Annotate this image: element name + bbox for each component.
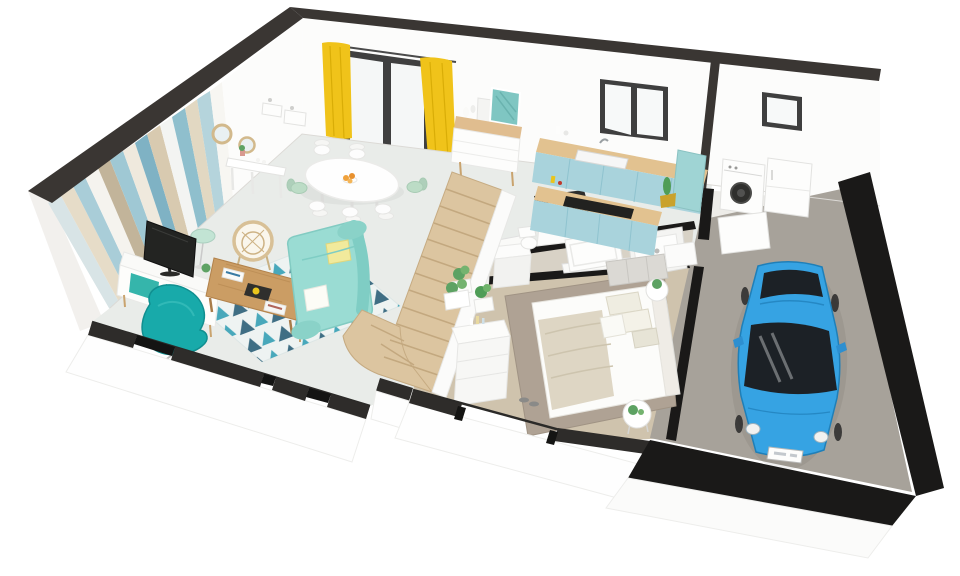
plant-icon [202, 264, 211, 273]
pillow [632, 328, 659, 348]
tall-appliance [764, 158, 812, 217]
headlight [814, 432, 828, 443]
cactus-icon [663, 177, 671, 195]
yellow-pillow [326, 240, 351, 264]
shower-drain [655, 249, 660, 254]
kitchen-window [600, 79, 668, 141]
floor-plan-canvas [0, 0, 960, 576]
wall-shelf [262, 103, 282, 117]
service-door-leaf [718, 212, 770, 254]
wall-shelf [284, 110, 306, 126]
tall-cabinet [672, 150, 706, 212]
white-pillow [304, 285, 329, 311]
washing-machine [720, 159, 765, 215]
double-bed [532, 284, 680, 418]
round-mirror-icon [213, 125, 231, 143]
car-windshield [744, 323, 837, 395]
toilet-bowl [521, 237, 537, 249]
floor-plan-3d-render [0, 0, 960, 576]
door-glass [391, 63, 424, 151]
door-glass [350, 57, 383, 146]
pillow [600, 314, 626, 338]
headlight [746, 424, 760, 435]
bedroom-dresser [452, 316, 510, 406]
bedside-table [646, 279, 668, 301]
garage-window [762, 92, 802, 131]
